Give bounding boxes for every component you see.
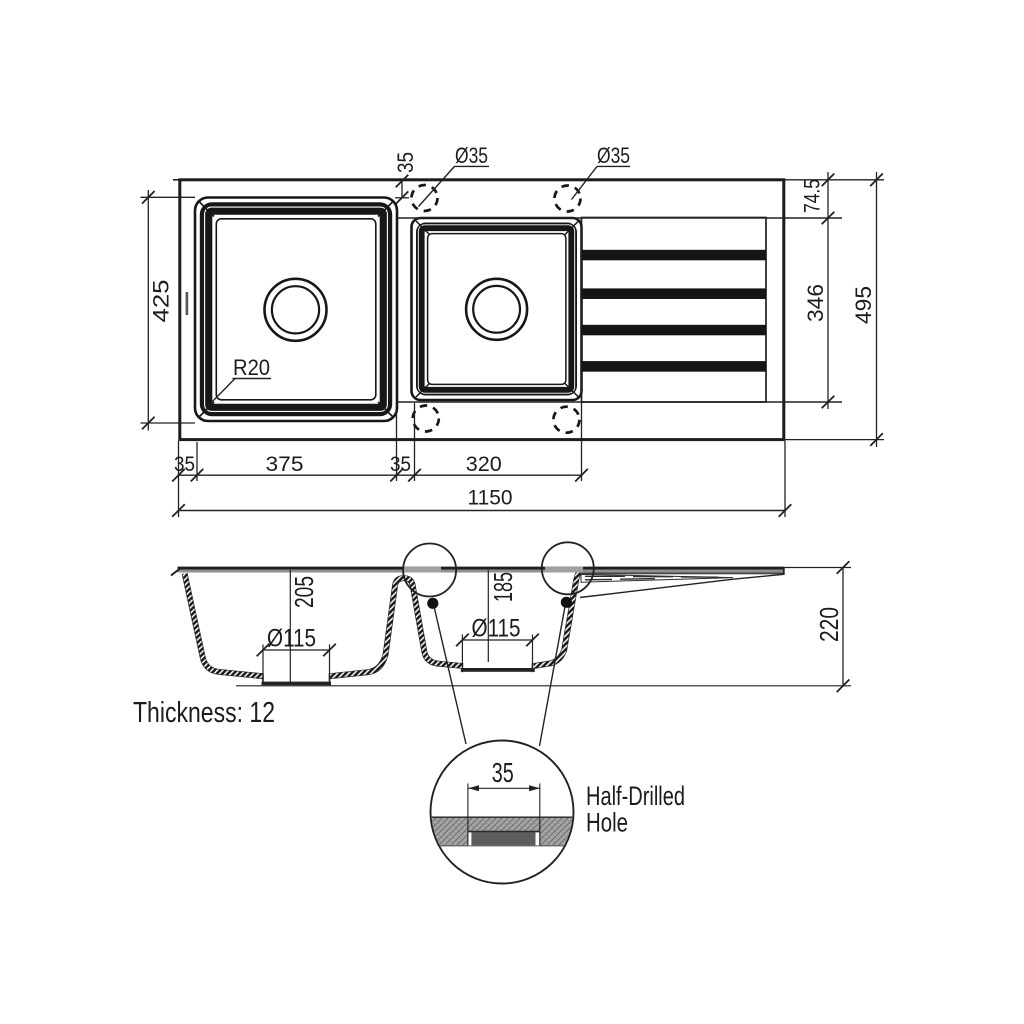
svg-text:35: 35: [390, 453, 411, 476]
svg-text:Ø35: Ø35: [597, 143, 630, 168]
svg-text:425: 425: [149, 280, 174, 323]
svg-text:185: 185: [488, 572, 518, 602]
svg-text:74.5: 74.5: [800, 179, 825, 213]
svg-text:495: 495: [851, 286, 876, 324]
svg-text:Ø115: Ø115: [472, 615, 521, 643]
svg-text:1150: 1150: [468, 487, 513, 510]
svg-text:35: 35: [492, 757, 514, 788]
svg-text:35: 35: [174, 453, 195, 476]
svg-text:Thickness: 12: Thickness: 12: [133, 697, 275, 729]
svg-text:R20: R20: [233, 355, 270, 380]
svg-text:375: 375: [266, 453, 304, 476]
svg-text:Ø115: Ø115: [267, 625, 316, 653]
svg-text:346: 346: [803, 284, 828, 322]
svg-text:Ø35: Ø35: [455, 143, 488, 168]
svg-text:205: 205: [289, 576, 319, 608]
svg-text:320: 320: [466, 453, 502, 476]
svg-text:220: 220: [814, 607, 844, 642]
svg-text:Hole: Hole: [586, 808, 628, 838]
svg-text:35: 35: [393, 152, 418, 173]
svg-text:Half-Drilled: Half-Drilled: [586, 781, 685, 811]
